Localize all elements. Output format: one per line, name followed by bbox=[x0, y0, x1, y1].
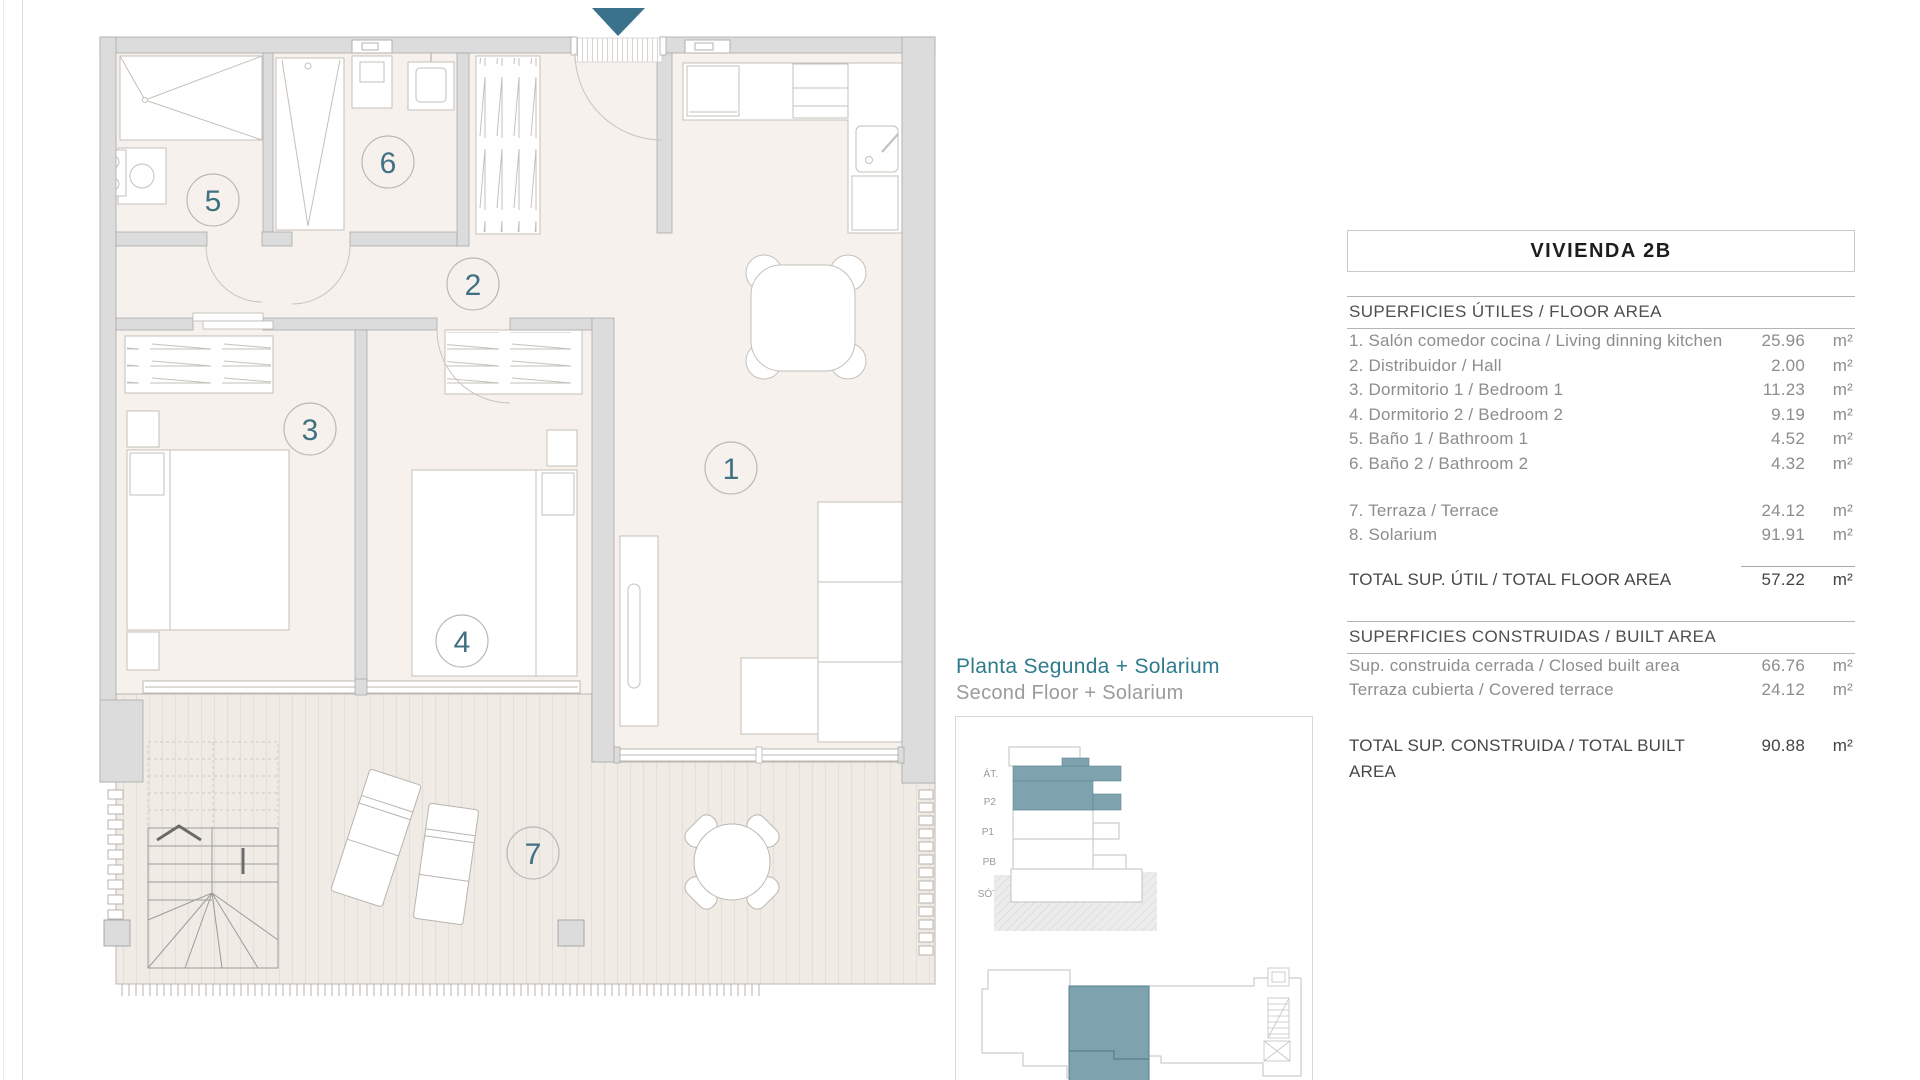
site-unit-highlight bbox=[1069, 986, 1149, 1080]
entrance-arrow-icon bbox=[592, 8, 645, 36]
room-number-7: 7 bbox=[525, 838, 542, 871]
row-value: 4.32 bbox=[1735, 452, 1805, 477]
room-number-3: 3 bbox=[302, 414, 319, 447]
row-label: 5. Baño 1 / Bathroom 1 bbox=[1347, 427, 1735, 452]
dining-table bbox=[746, 255, 866, 379]
row-value: 11.23 bbox=[1735, 378, 1805, 403]
room-number-1: 1 bbox=[723, 453, 740, 486]
areas-table: SUPERFICIES ÚTILES / FLOOR AREA 1. Salón… bbox=[1347, 296, 1855, 785]
built-area-section-title: SUPERFICIES CONSTRUIDAS / BUILT AREA bbox=[1347, 622, 1855, 653]
room-number-2: 2 bbox=[465, 269, 482, 302]
row-unit: m² bbox=[1805, 678, 1855, 703]
row-label: Terraza cubierta / Covered terrace bbox=[1347, 678, 1735, 703]
room-number-5: 5 bbox=[205, 185, 222, 218]
row-value: 24.12 bbox=[1735, 678, 1805, 703]
floor-plan-drawing: 1 2 3 4 5 6 7 bbox=[0, 0, 960, 1080]
row-unit: m² bbox=[1805, 354, 1855, 379]
table-row: 5. Baño 1 / Bathroom 1 4.52 m² bbox=[1347, 427, 1855, 452]
label-p1: P1 bbox=[982, 827, 995, 838]
row-unit: m² bbox=[1805, 452, 1855, 477]
table-row: 6. Baño 2 / Bathroom 2 4.32 m² bbox=[1347, 452, 1855, 477]
row-label: 2. Distribuidor / Hall bbox=[1347, 354, 1735, 379]
row-value: 66.76 bbox=[1735, 654, 1805, 679]
row-unit: m² bbox=[1805, 523, 1855, 548]
row-unit: m² bbox=[1805, 499, 1855, 524]
row-value: 91.91 bbox=[1735, 523, 1805, 548]
terrace-table bbox=[681, 811, 783, 913]
total-unit: m² bbox=[1805, 733, 1855, 785]
total-unit: m² bbox=[1805, 567, 1855, 593]
total-label: TOTAL SUP. CONSTRUIDA / TOTAL BUILT AREA bbox=[1347, 733, 1735, 785]
label-atico: ÁT. bbox=[984, 767, 998, 780]
row-unit: m² bbox=[1805, 403, 1855, 428]
row-value: 4.52 bbox=[1735, 427, 1805, 452]
row-unit: m² bbox=[1805, 654, 1855, 679]
floor-plan-sheet: 1 2 3 4 5 6 7 bbox=[0, 0, 1920, 1080]
total-value: 90.88 bbox=[1735, 733, 1805, 785]
total-built-area-row: TOTAL SUP. CONSTRUIDA / TOTAL BUILT AREA… bbox=[1347, 733, 1855, 785]
row-label: 7. Terraza / Terrace bbox=[1347, 499, 1735, 524]
row-unit: m² bbox=[1805, 427, 1855, 452]
balustrade-left bbox=[108, 790, 123, 919]
table-row: 4. Dormitorio 2 / Bedroom 2 9.19 m² bbox=[1347, 403, 1855, 428]
table-row: Terraza cubierta / Covered terrace 24.12… bbox=[1347, 678, 1855, 703]
label-p2: P2 bbox=[984, 797, 997, 808]
unit-title-box: VIVIENDA 2B bbox=[1347, 230, 1855, 272]
row-label: 4. Dormitorio 2 / Bedroom 2 bbox=[1347, 403, 1735, 428]
row-label: Sup. construida cerrada / Closed built a… bbox=[1347, 654, 1735, 679]
row-value: 2.00 bbox=[1735, 354, 1805, 379]
plan-title-es: Planta Segunda + Solarium bbox=[956, 655, 1220, 679]
table-row: 2. Distribuidor / Hall 2.00 m² bbox=[1347, 354, 1855, 379]
table-row: Sup. construida cerrada / Closed built a… bbox=[1347, 654, 1855, 679]
unit-title: VIVIENDA 2B bbox=[1530, 240, 1671, 263]
row-label: 3. Dormitorio 1 / Bedroom 1 bbox=[1347, 378, 1735, 403]
terrace-post-left bbox=[104, 920, 130, 946]
site-stair-core bbox=[1264, 968, 1290, 1061]
room-number-6: 6 bbox=[380, 147, 397, 180]
row-value: 9.19 bbox=[1735, 403, 1805, 428]
bedroom1-furniture bbox=[125, 336, 289, 670]
floor-area-section-title: SUPERFICIES ÚTILES / FLOOR AREA bbox=[1347, 297, 1855, 328]
total-floor-area-row: TOTAL SUP. ÚTIL / TOTAL FLOOR AREA 57.22… bbox=[1347, 567, 1855, 593]
table-row: 3. Dormitorio 1 / Bedroom 1 11.23 m² bbox=[1347, 378, 1855, 403]
total-label: TOTAL SUP. ÚTIL / TOTAL FLOOR AREA bbox=[1347, 567, 1735, 593]
room-number-4: 4 bbox=[454, 626, 471, 659]
highlighted-floors bbox=[1013, 758, 1121, 810]
row-label: 1. Salón comedor cocina / Living dinning… bbox=[1347, 329, 1735, 354]
terrace-edge-hatch bbox=[116, 984, 760, 996]
table-row: 8. Solarium 91.91 m² bbox=[1347, 523, 1855, 548]
site-key-plan bbox=[982, 968, 1301, 1080]
row-value: 25.96 bbox=[1735, 329, 1805, 354]
entrance-mat bbox=[571, 37, 666, 62]
terrace-post-right bbox=[558, 920, 584, 946]
label-pb: PB bbox=[983, 857, 997, 868]
row-label: 8. Solarium bbox=[1347, 523, 1735, 548]
row-unit: m² bbox=[1805, 378, 1855, 403]
location-key-drawing: ÁT. P2 P1 PB SÓT. bbox=[956, 717, 1312, 1080]
total-value: 57.22 bbox=[1735, 567, 1805, 593]
table-row: 7. Terraza / Terrace 24.12 m² bbox=[1347, 499, 1855, 524]
location-key-box: ÁT. P2 P1 PB SÓT. bbox=[955, 716, 1313, 1080]
row-value: 24.12 bbox=[1735, 499, 1805, 524]
hall-wardrobe bbox=[476, 56, 540, 234]
row-unit: m² bbox=[1805, 329, 1855, 354]
plan-title-en: Second Floor + Solarium bbox=[956, 682, 1184, 705]
building-section-diagram: ÁT. P2 P1 PB SÓT. bbox=[978, 747, 1157, 931]
table-row: 1. Salón comedor cocina / Living dinning… bbox=[1347, 329, 1855, 354]
row-label: 6. Baño 2 / Bathroom 2 bbox=[1347, 452, 1735, 477]
